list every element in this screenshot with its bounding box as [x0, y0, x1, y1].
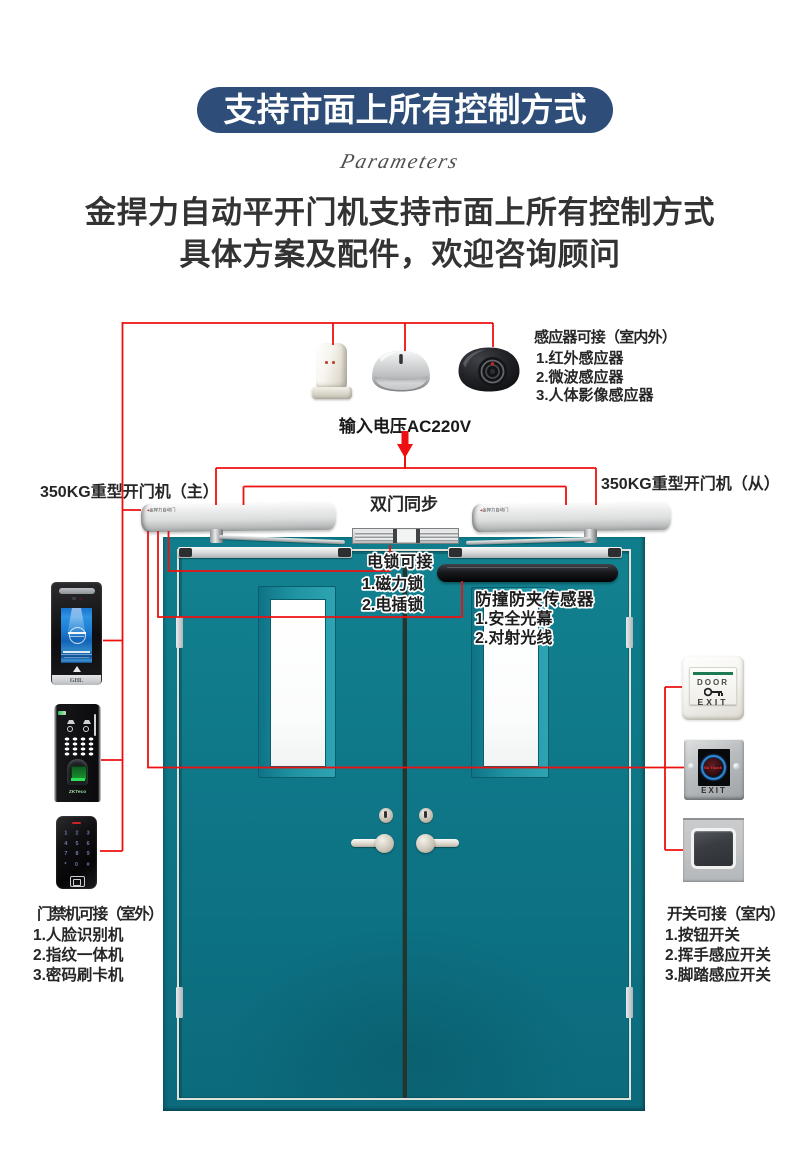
- svg-text:防撞防夹传感器: 防撞防夹传感器: [475, 589, 594, 609]
- svg-text:电锁可接: 电锁可接: [367, 552, 433, 571]
- svg-text:2.对射光线: 2.对射光线: [475, 628, 552, 647]
- svg-text:1.磁力锁: 1.磁力锁: [362, 574, 423, 593]
- svg-text:1.安全光幕: 1.安全光幕: [475, 609, 553, 628]
- svg-text:2.电插锁: 2.电插锁: [362, 595, 423, 614]
